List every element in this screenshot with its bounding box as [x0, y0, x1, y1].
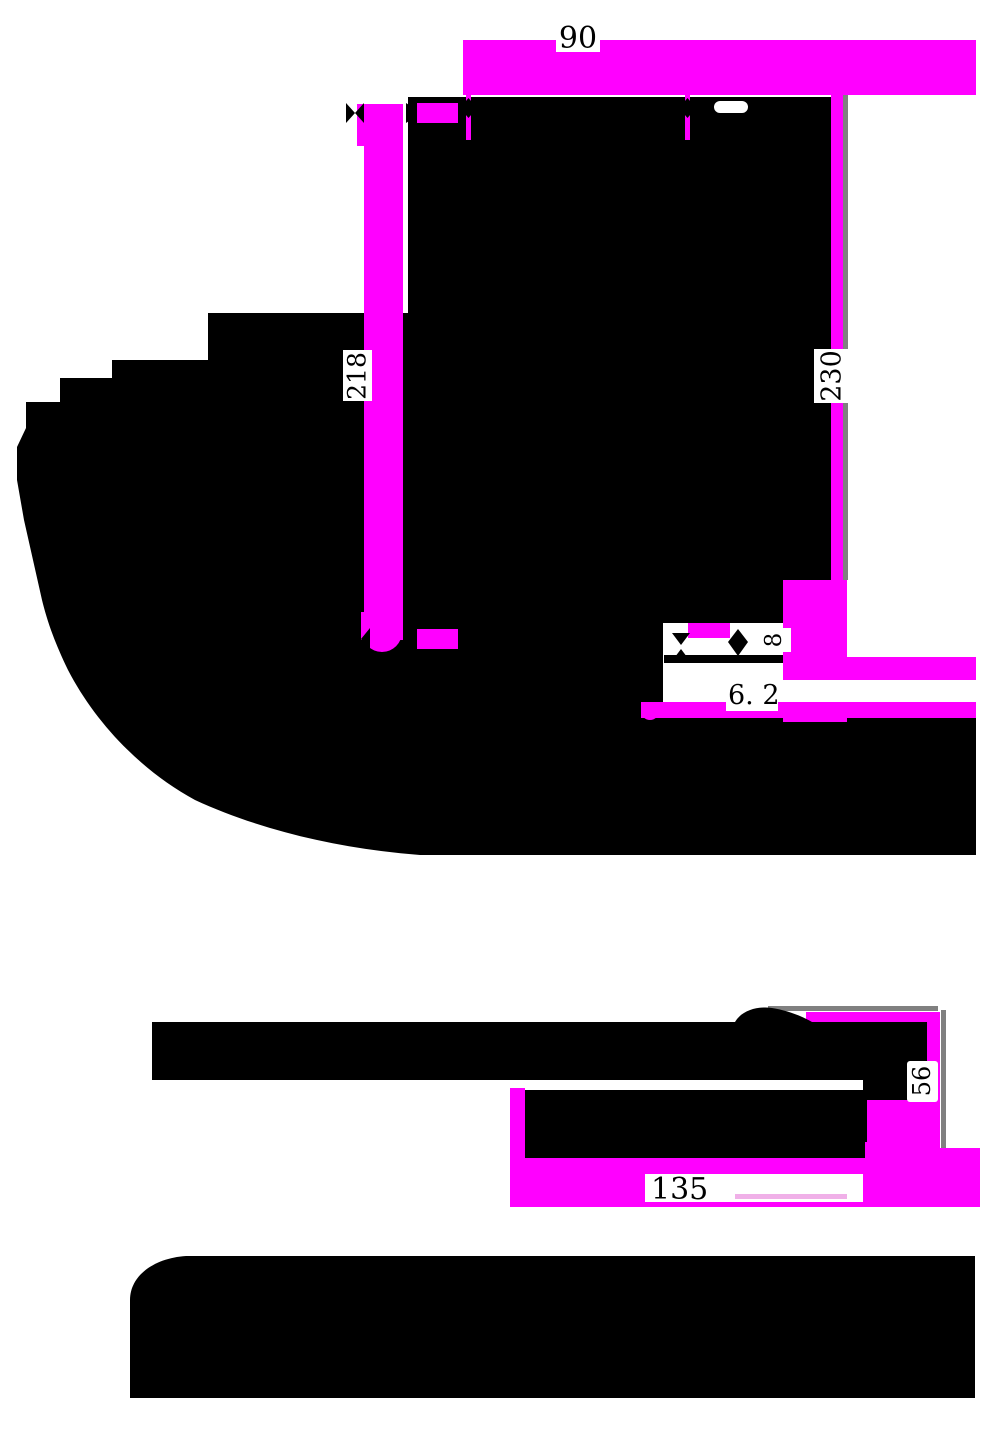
- dim-218-label: 218: [343, 352, 372, 400]
- lip-highlight: [688, 623, 730, 638]
- slot-highlight-upper: [847, 657, 976, 680]
- side-guide-right: [941, 1010, 946, 1150]
- dim-90-band: [463, 40, 976, 95]
- slot-white-band: [777, 680, 976, 702]
- dim-230-label: 230: [817, 350, 848, 402]
- dim-56-top-strip: [806, 1012, 940, 1022]
- slot-highlight-lower: [641, 702, 976, 718]
- dim-135-label: 135: [651, 1172, 708, 1207]
- lip-diamond-arrow: [728, 629, 748, 656]
- side-block: [525, 1090, 865, 1158]
- dim-8-arrow-down: [672, 633, 690, 645]
- dim-6-2-label: 6. 2: [728, 680, 780, 711]
- dim-230-line: [831, 95, 843, 580]
- dim-90-label: 90: [559, 21, 597, 56]
- side-bar: [152, 1022, 927, 1080]
- drawing-canvas: 90 218 230 8 6. 2 56 135: [0, 0, 982, 1432]
- side-block-right-edge: [860, 1100, 867, 1142]
- side-block-left-highlight: [510, 1088, 525, 1160]
- side-block-right-wedge: [865, 1100, 927, 1158]
- dim-8-label: 8: [761, 633, 787, 648]
- dim-230-guide: [843, 95, 848, 580]
- front-view: 90 218 230 8 6. 2: [17, 21, 976, 855]
- leader-dot: [641, 702, 659, 720]
- corner-notch: [714, 101, 748, 113]
- dim-56-label: 56: [908, 1066, 936, 1097]
- dim-135-pale-strip: [735, 1194, 847, 1199]
- dim-135-right-block: [940, 1148, 980, 1207]
- bottom-section: [130, 1256, 975, 1398]
- top-clip-highlight: [417, 103, 458, 123]
- bottom-clip-highlight: [417, 629, 458, 649]
- bottom-section-shape: [130, 1256, 975, 1398]
- side-view: 56 135: [152, 1006, 980, 1207]
- side-guide-top: [768, 1006, 938, 1011]
